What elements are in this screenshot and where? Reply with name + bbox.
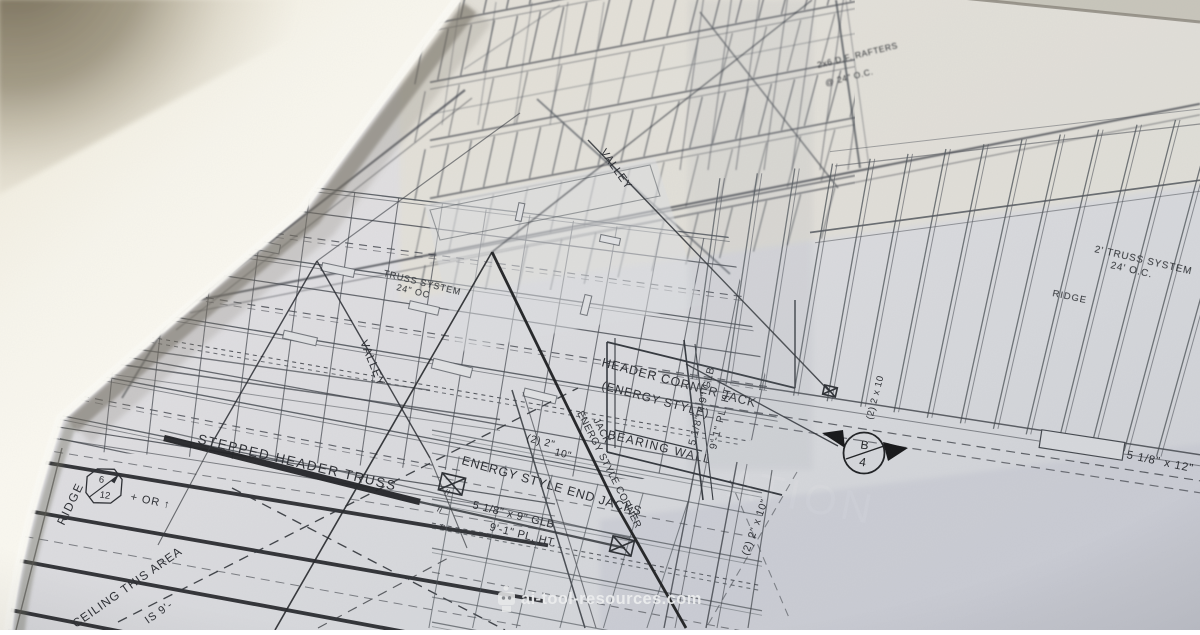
svg-text:ai-tool-resources.com: ai-tool-resources.com: [521, 590, 702, 608]
